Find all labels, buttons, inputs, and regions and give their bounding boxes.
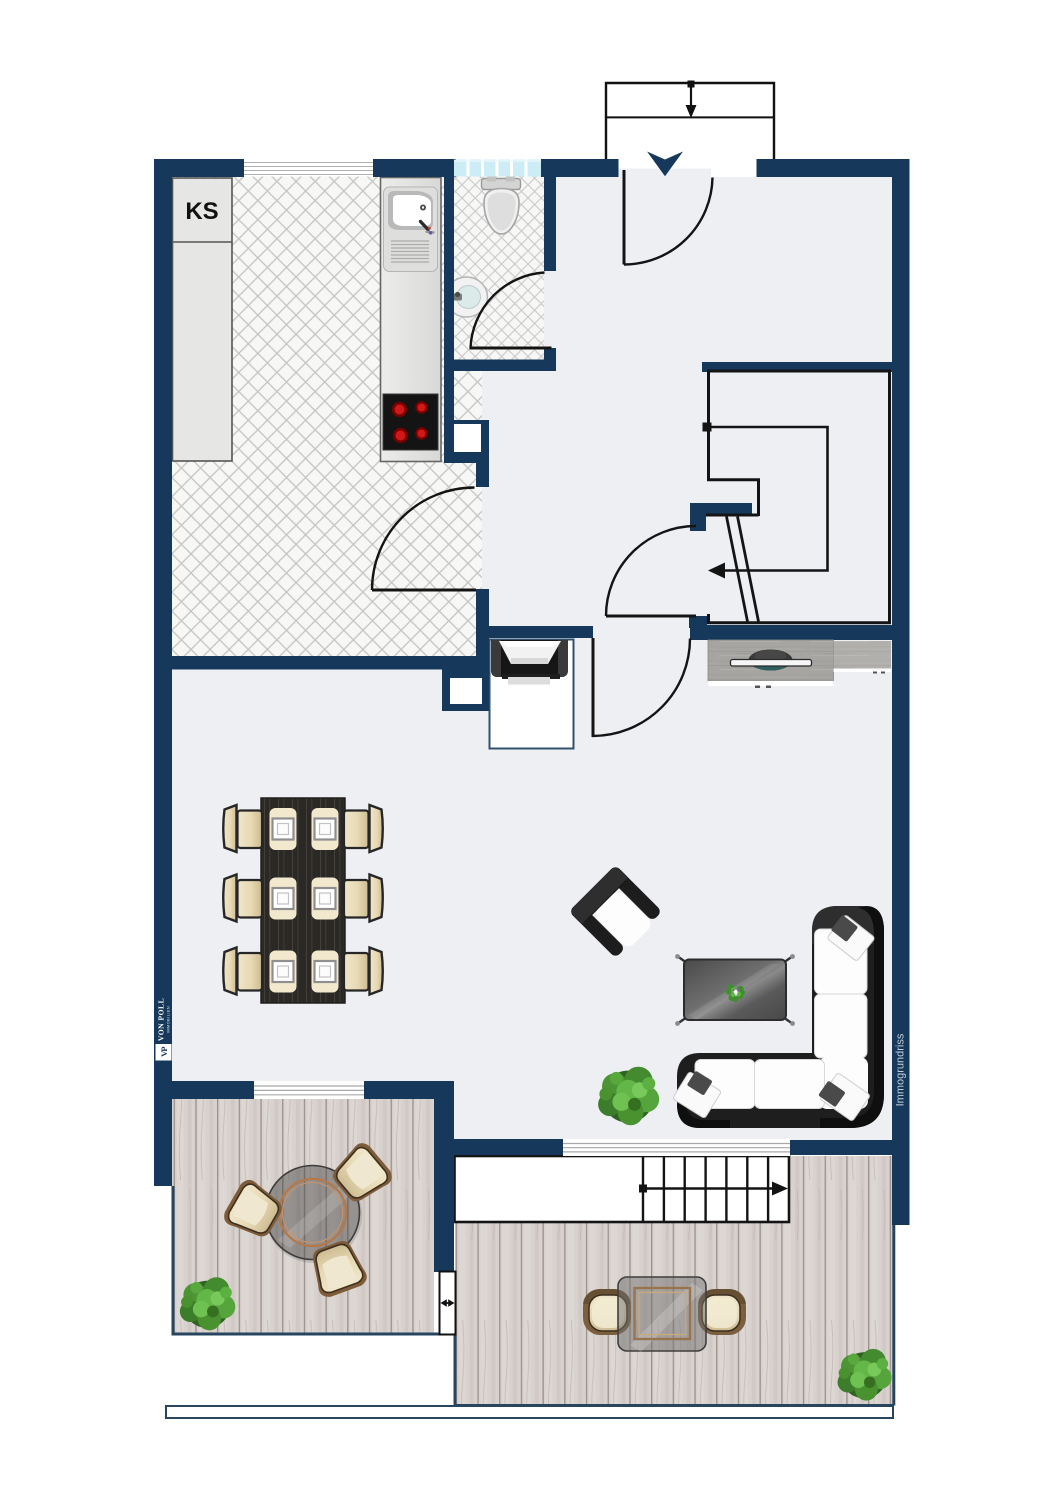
svg-text:IMMOBILIEN: IMMOBILIEN <box>166 1006 170 1033</box>
svg-text:VP: VP <box>159 1047 169 1057</box>
svg-text:VON POLL: VON POLL <box>157 998 166 1041</box>
svg-text:KS: KS <box>185 198 218 225</box>
svg-text:Immogrundriss: Immogrundriss <box>895 1033 907 1106</box>
